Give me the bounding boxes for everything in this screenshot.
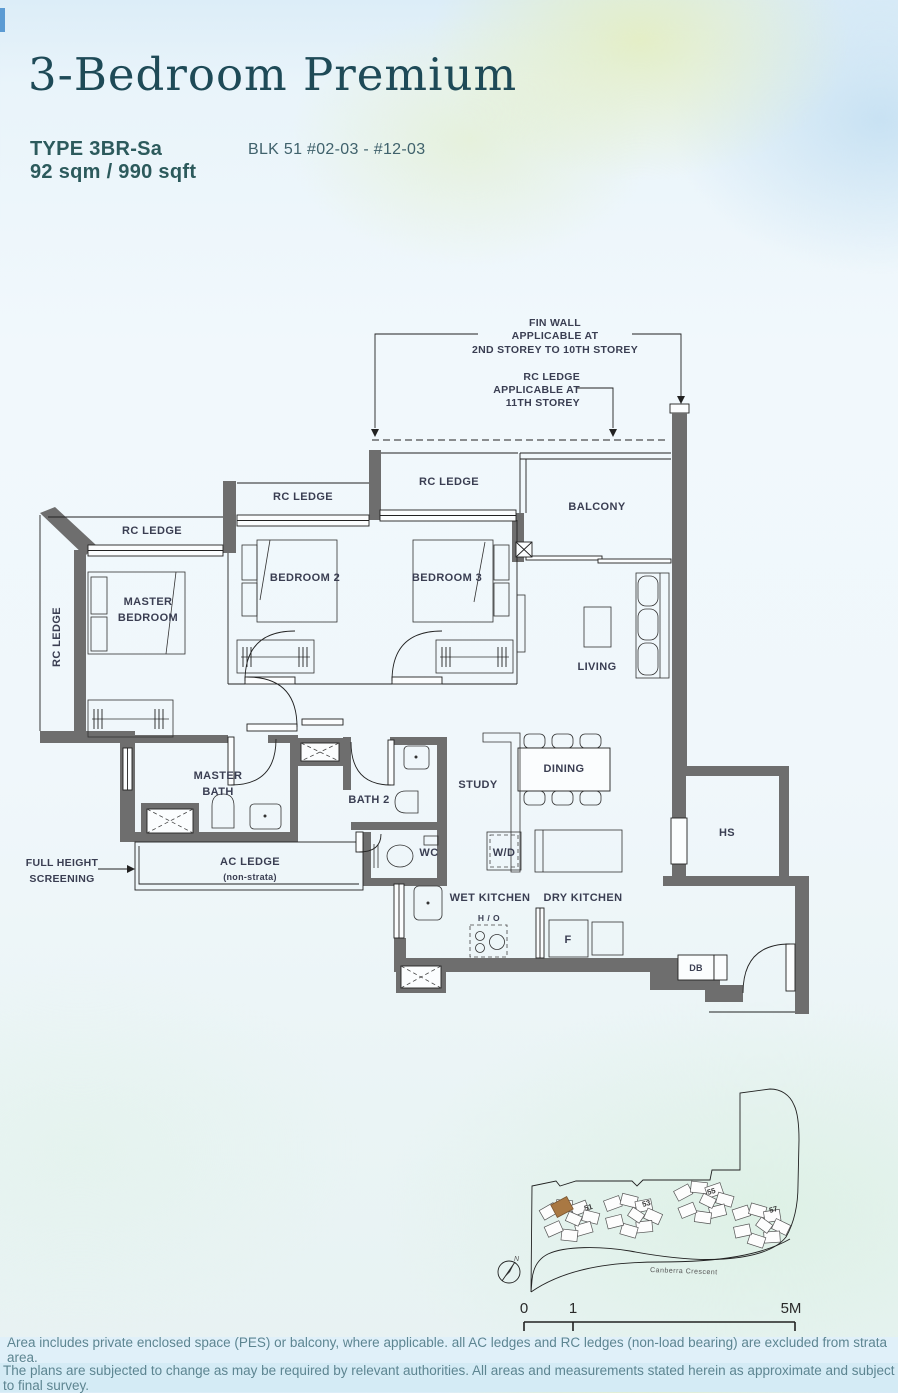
floorplan-canvas: RC LEDGE RC LEDGE RC LEDGE RC LEDGE MAST…	[0, 0, 898, 1392]
label-bath2: BATH 2	[348, 794, 389, 806]
label-ac-ledge: AC LEDGE	[220, 856, 280, 868]
label-dining: DINING	[544, 763, 585, 775]
label-ac-ledge-note: (non-strata)	[223, 872, 277, 882]
label-bedroom2: BEDROOM 2	[270, 572, 340, 584]
label-master-bath-1: MASTER	[194, 770, 243, 782]
scale-bar: 0 1 5M	[520, 1300, 802, 1331]
footer-disclaimer-1: Area includes private enclosed space (PE…	[0, 1337, 898, 1363]
ann-rc11-3: 11TH STOREY	[506, 397, 580, 409]
label-bedroom3: BEDROOM 3	[412, 572, 482, 584]
ann-fhs-1: FULL HEIGHT	[26, 857, 99, 869]
compass-n: N	[514, 1256, 520, 1263]
label-rc-ledge-bed3: RC LEDGE	[419, 476, 479, 488]
label-wc: WC	[419, 847, 438, 859]
label-master-bath-2: BATH	[202, 786, 233, 798]
label-db-text: DB	[689, 963, 703, 973]
label-hob: H / O	[478, 913, 500, 923]
ann-finwall-2: APPLICABLE AT	[512, 330, 599, 342]
site-map: 51 53 55 57 Canberra Crescent N 0 1 5M	[498, 1089, 801, 1331]
db-box: DB	[678, 955, 727, 980]
label-rc-ledge-master: RC LEDGE	[122, 525, 182, 537]
ann-fhs-2: SCREENING	[29, 873, 94, 885]
label-dry-kitchen: DRY KITCHEN	[544, 892, 623, 904]
scale-5m: 5M	[781, 1300, 802, 1317]
label-balcony: BALCONY	[568, 501, 625, 513]
footer-disclaimer-2: The plans are subjected to change as may…	[0, 1363, 898, 1392]
label-rc-ledge-bed2: RC LEDGE	[273, 491, 333, 503]
ann-finwall-3: 2ND STOREY TO 10TH STOREY	[472, 344, 638, 356]
label-living: LIVING	[577, 661, 616, 673]
scale-1: 1	[569, 1300, 577, 1317]
label-wd: W/D	[493, 847, 516, 859]
doors	[228, 631, 795, 993]
label-rc-ledge-left: RC LEDGE	[51, 607, 63, 667]
label-master-bedroom-1: MASTER	[124, 596, 173, 608]
annotations: FIN WALL APPLICABLE AT 2ND STOREY TO 10T…	[26, 317, 638, 885]
ann-rc11-2: APPLICABLE AT	[493, 384, 580, 396]
scale-0: 0	[520, 1300, 528, 1317]
map-block-51: 51	[583, 1202, 594, 1213]
label-hs: HS	[719, 827, 735, 839]
label-wet-kitchen: WET KITCHEN	[450, 892, 531, 904]
compass-icon: N	[498, 1256, 520, 1283]
map-road-name: Canberra Crescent	[650, 1267, 718, 1276]
label-master-bedroom-2: BEDROOM	[118, 612, 178, 624]
label-fridge: F	[564, 934, 571, 946]
ann-finwall-1: FIN WALL	[529, 317, 581, 329]
ann-rc11-1: RC LEDGE	[523, 371, 580, 383]
label-study: STUDY	[458, 779, 498, 791]
